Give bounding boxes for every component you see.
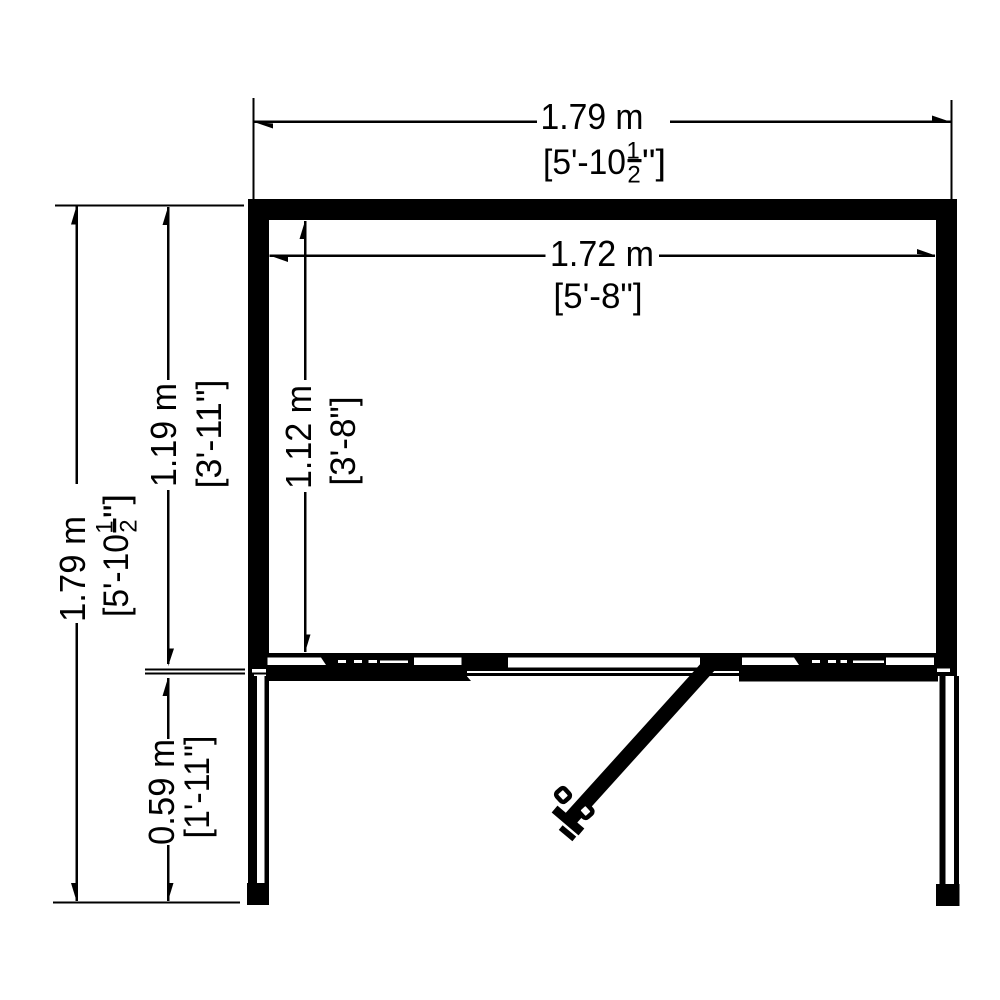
svg-text:2: 2 (116, 519, 143, 532)
svg-text:1.72 m: 1.72 m (550, 233, 654, 274)
svg-text:[1'-11"]: [1'-11"] (178, 736, 217, 839)
svg-text:1.79 m: 1.79 m (541, 96, 644, 137)
svg-text:[3'-8"]: [3'-8"] (324, 396, 363, 485)
svg-text:[5'-10: [5'-10 (97, 534, 136, 617)
svg-text:[5'-10: [5'-10 (543, 143, 626, 182)
svg-text:1.12 m: 1.12 m (278, 385, 319, 489)
svg-text:1.19 m: 1.19 m (143, 383, 184, 487)
svg-text:1: 1 (626, 138, 639, 165)
svg-text:"]: "] (97, 494, 136, 518)
svg-text:0.59 m: 0.59 m (141, 739, 182, 845)
svg-text:[5'-8"]: [5'-8"] (553, 277, 642, 316)
svg-text:"]: "] (642, 143, 666, 182)
svg-text:1: 1 (92, 520, 119, 533)
svg-text:[3'-11"]: [3'-11"] (190, 380, 229, 489)
svg-text:2: 2 (627, 162, 640, 189)
svg-text:1.79 m: 1.79 m (52, 516, 93, 622)
